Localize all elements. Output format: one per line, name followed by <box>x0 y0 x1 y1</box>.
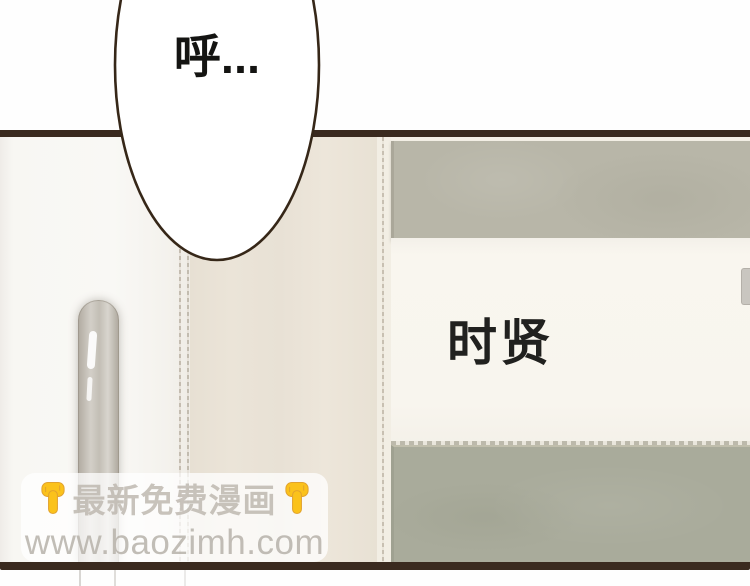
handle-highlight <box>86 377 92 401</box>
name-plate-band: 时贤 <box>391 238 750 445</box>
lower-wall-band <box>391 445 750 562</box>
right-wall: 时贤 <box>391 137 750 562</box>
gutter-mark <box>184 570 186 586</box>
panel-bottom-border <box>0 562 750 570</box>
speech-bubble-text: 呼... <box>100 18 334 87</box>
edge-tab <box>741 268 750 305</box>
watermark-url: www.baozimh.com <box>25 523 324 563</box>
watermark: 最新免费漫画 www.baozimh.com <box>21 473 328 562</box>
name-plate-text: 时贤 <box>447 316 553 370</box>
upper-wall-band <box>391 141 750 240</box>
gutter-mark <box>79 570 81 586</box>
watermark-text: 最新免费漫画 <box>73 474 277 522</box>
wall-trim-strip <box>377 137 391 562</box>
speech-bubble: 呼... <box>100 0 334 266</box>
comic-page: 时贤 呼... 最新免费漫画 <box>0 0 750 586</box>
pointing-down-icon <box>38 481 68 515</box>
handle-highlight <box>87 331 98 369</box>
gutter-mark <box>114 570 116 586</box>
watermark-line1: 最新免费漫画 <box>38 474 312 522</box>
pointing-down-icon <box>282 481 312 515</box>
trim-line <box>382 137 384 562</box>
